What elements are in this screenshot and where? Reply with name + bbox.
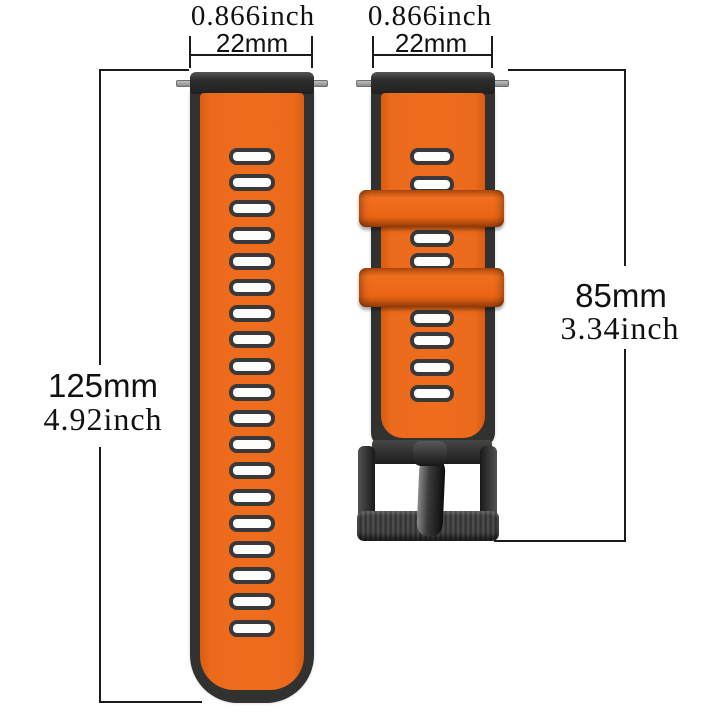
- keeper-loop: [359, 268, 504, 307]
- long-band-width-mm-label: 22mm: [216, 30, 288, 56]
- product-dimension-diagram: 0.866inch 22mm 0.866inch 22mm 125mm 4.92…: [0, 0, 720, 720]
- long-band-length-mm-label: 125mm: [48, 369, 158, 402]
- strap-hole: [229, 253, 275, 270]
- buckle-prong-head: [413, 441, 447, 466]
- strap-hole: [410, 230, 454, 247]
- strap-hole: [229, 462, 275, 479]
- short-band-length-mm-label: 85mm: [575, 279, 667, 312]
- strap-hole: [229, 174, 275, 191]
- strap-hole: [229, 279, 275, 296]
- strap-hole: [229, 384, 275, 401]
- strap-hole: [229, 567, 275, 584]
- dimension-line-vertical-short: [624, 69, 626, 266]
- strap-hole: [229, 305, 275, 322]
- long-band-length-inch-label: 4.92inch: [43, 403, 162, 435]
- strap-hole: [229, 148, 275, 165]
- dimension-tick: [491, 36, 493, 68]
- strap-hole: [229, 620, 275, 637]
- dimension-line-top-long: [99, 69, 189, 71]
- dimension-tick: [311, 36, 313, 68]
- keeper-loop: [359, 190, 504, 227]
- strap-hole: [229, 541, 275, 558]
- strap-hole: [410, 310, 454, 327]
- long-band-lug-end: [190, 72, 314, 94]
- dimension-line-bottom-short: [494, 540, 626, 542]
- strap-hole: [229, 227, 275, 244]
- strap-hole: [229, 515, 275, 532]
- dimension-line-vertical-short: [624, 349, 626, 542]
- short-band-width-mm-label: 22mm: [395, 30, 467, 56]
- strap-hole: [229, 436, 275, 453]
- strap-hole: [410, 148, 454, 165]
- strap-hole: [229, 593, 275, 610]
- dimension-tick: [372, 36, 374, 68]
- strap-hole: [229, 200, 275, 217]
- long-band-width-inch-label: 0.866inch: [191, 2, 315, 31]
- strap-hole: [229, 358, 275, 375]
- short-band-width-inch-label: 0.866inch: [368, 2, 492, 31]
- short-band-length-inch-label: 3.34inch: [560, 312, 679, 344]
- dimension-line-vertical-long: [99, 447, 101, 703]
- dimension-line-bottom-long: [99, 701, 202, 703]
- dimension-line-width-short: [372, 54, 493, 56]
- strap-hole: [229, 331, 275, 348]
- short-band-lug-end: [371, 72, 495, 94]
- strap-hole: [410, 332, 454, 349]
- buckle-prong: [416, 457, 445, 536]
- strap-hole: [229, 489, 275, 506]
- dimension-line-top-short: [508, 69, 626, 71]
- dimension-tick: [189, 36, 191, 68]
- dimension-line-width-long: [189, 54, 313, 56]
- strap-hole: [410, 359, 454, 376]
- strap-hole: [229, 410, 275, 427]
- strap-hole: [410, 385, 454, 402]
- dimension-line-vertical-long: [99, 69, 101, 365]
